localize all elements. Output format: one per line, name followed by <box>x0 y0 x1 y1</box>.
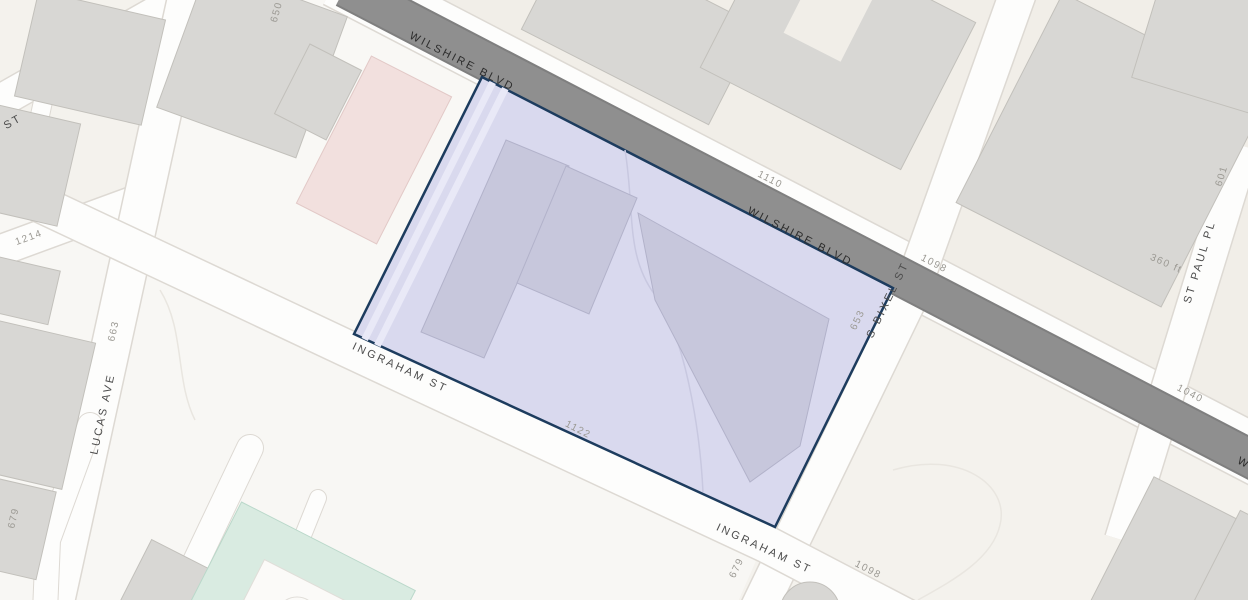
lot-line-curve-southeast <box>893 464 1001 600</box>
map-canvas[interactable]: WILSHIRE BLVD WILSHIRE BLVD WILSHIRE BLV… <box>0 0 1248 600</box>
map-layer <box>0 0 1248 600</box>
